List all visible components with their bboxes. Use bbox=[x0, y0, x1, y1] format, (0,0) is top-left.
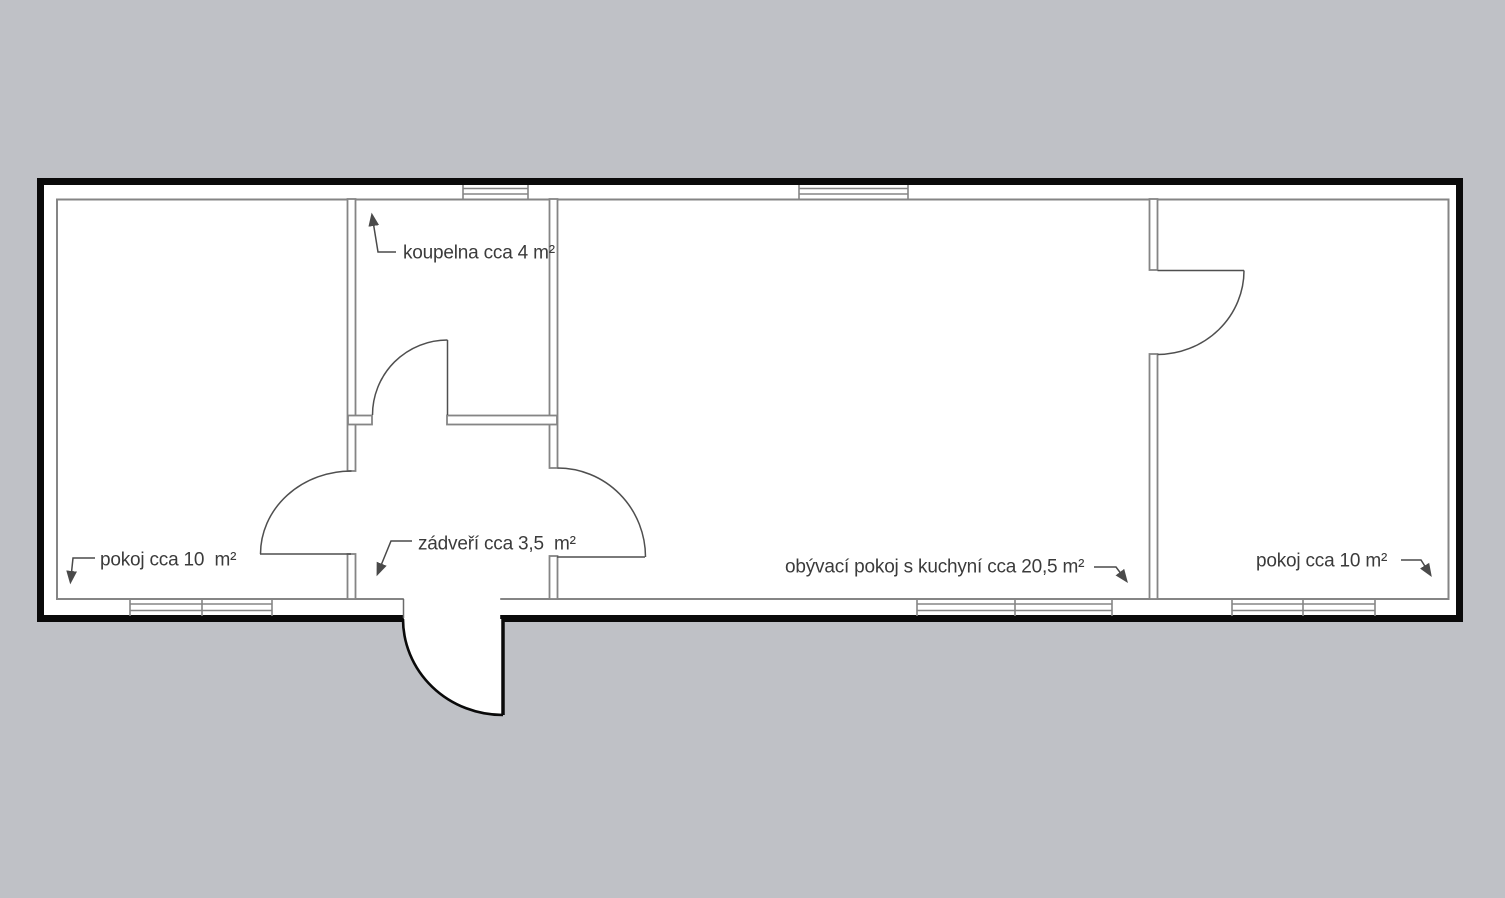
floor-plan-canvas: koupelna cca 4 m² pokoj cca 10 m² zádveř… bbox=[0, 0, 1505, 898]
wall-leftroom-hall-stub bbox=[348, 554, 356, 599]
wall-leftroom-hall-upper bbox=[348, 199, 356, 471]
wall-living-rightroom-upper bbox=[1150, 199, 1158, 270]
label-bathroom: koupelna cca 4 m² bbox=[403, 244, 555, 263]
wall-living-rightroom-lower bbox=[1150, 354, 1158, 599]
floor-plan-drawing bbox=[0, 0, 1505, 898]
label-room-left: pokoj cca 10 m² bbox=[100, 551, 236, 570]
wall-hall-living-stub bbox=[550, 556, 558, 599]
label-entrance-hall: zádveří cca 3,5 m² bbox=[418, 535, 576, 554]
exterior-walls bbox=[41, 182, 1460, 619]
label-room-right: pokoj cca 10 m² bbox=[1256, 552, 1387, 571]
wall-hall-living-upper bbox=[550, 199, 558, 468]
wall-bathroom-bottom-right bbox=[447, 416, 557, 425]
label-living-room-kitchen: obývací pokoj s kuchyní cca 20,5 m² bbox=[785, 558, 1084, 577]
wall-bathroom-bottom-left bbox=[348, 416, 372, 425]
entrance-door bbox=[403, 598, 503, 715]
